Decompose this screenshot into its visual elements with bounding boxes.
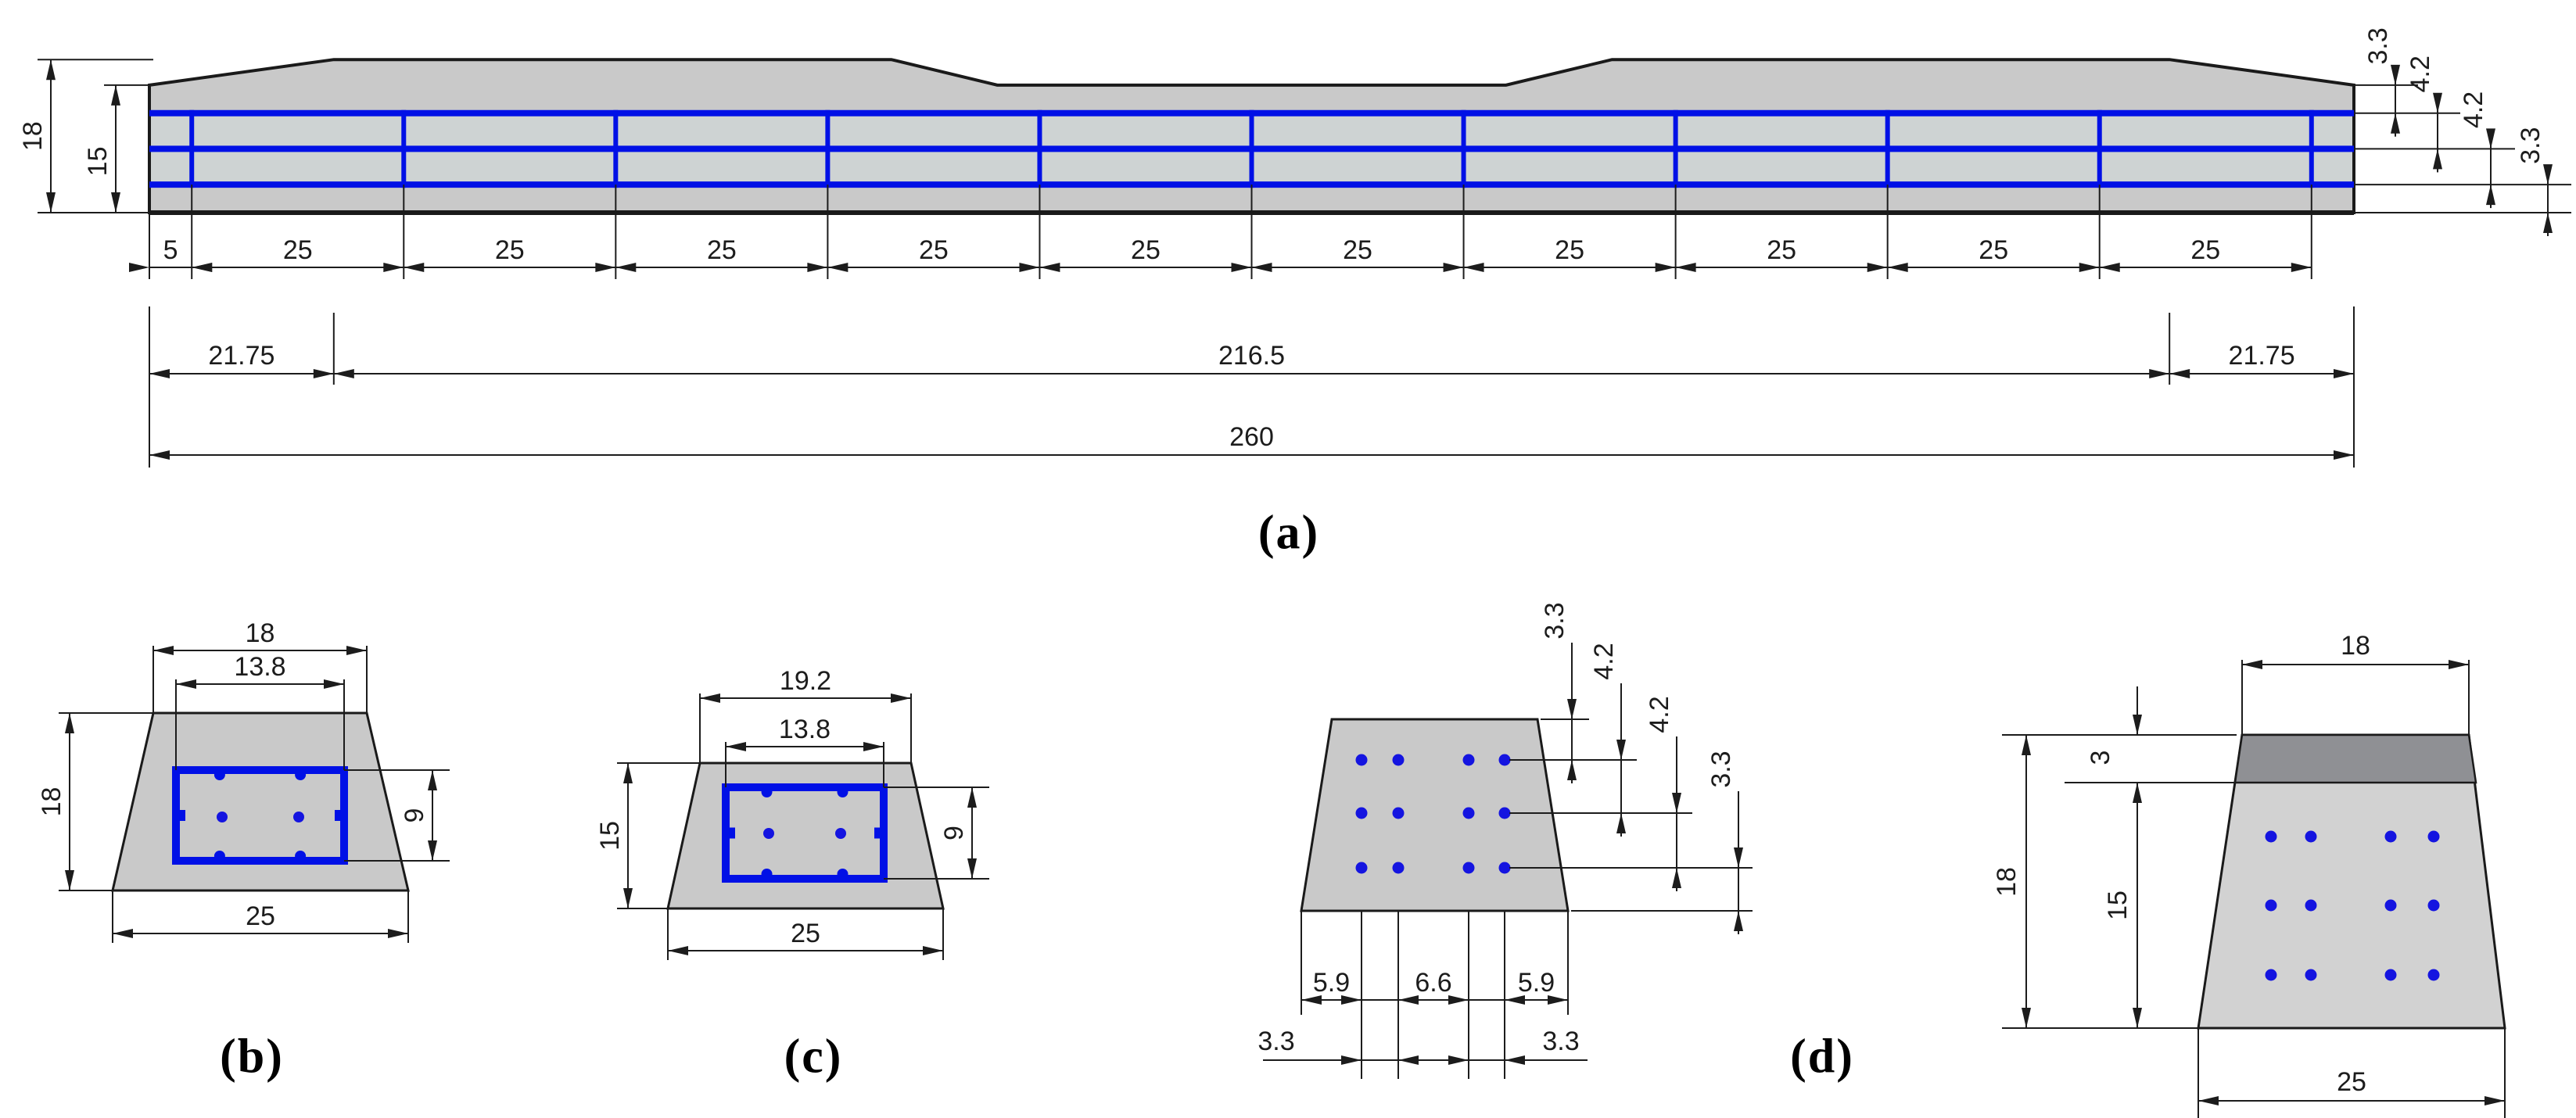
dim-label: 5.9 [1313, 968, 1350, 998]
arrowhead [967, 858, 977, 879]
arrowhead [1672, 793, 1681, 813]
arrowhead [65, 713, 74, 733]
arrowhead [1398, 1055, 1419, 1065]
arrowhead [46, 192, 56, 213]
rebar-dot [293, 812, 304, 822]
arrowhead [615, 263, 636, 272]
arrowhead [2334, 369, 2354, 378]
arrowhead [1867, 263, 1888, 272]
strand-dot [2305, 831, 2317, 843]
stirrup-notch [295, 769, 306, 780]
dim-label: 25 [495, 235, 525, 265]
arrowhead [2334, 450, 2354, 460]
arrowhead [324, 679, 344, 689]
arrowhead [2391, 65, 2400, 85]
section-outline [1301, 719, 1568, 911]
arrowhead [1672, 868, 1681, 888]
dim-label: 4.2 [2406, 56, 2435, 92]
dim-label: 18 [2341, 631, 2370, 661]
dim-label: 260 [1229, 422, 1274, 452]
dim-label: 25 [1555, 235, 1584, 265]
arrowhead [153, 646, 174, 655]
strand-dot [2428, 831, 2440, 843]
arrowhead [1039, 263, 1060, 272]
strand-dot [1499, 808, 1511, 819]
dim-label: 15 [595, 821, 625, 851]
strand-dot [2385, 969, 2397, 981]
dim-label: 3.3 [1540, 602, 1570, 639]
arrowhead [2242, 660, 2262, 669]
dim-label: 25 [1979, 235, 2008, 265]
strand-dot [1393, 862, 1405, 874]
composite-section-drawing: 181815325 [1932, 594, 2576, 1118]
strand-dot [2266, 969, 2277, 981]
dim-label: 25 [1767, 235, 1796, 265]
arrowhead [1734, 911, 1743, 931]
arrowhead [807, 263, 827, 272]
arrowhead [2022, 735, 2031, 755]
arrowhead [1232, 263, 1252, 272]
arrowhead [176, 679, 196, 689]
strand-dot [1463, 808, 1475, 819]
strand-dot [2266, 831, 2277, 843]
dim-label: 25 [246, 901, 275, 931]
dim-label: 5 [163, 235, 178, 265]
dim-label: 25 [707, 235, 737, 265]
arrowhead [346, 646, 367, 655]
dim-label: 18 [37, 787, 66, 817]
strand-dot [2385, 831, 2397, 843]
stirrup-notch [214, 769, 225, 780]
dim-label: 3.3 [1706, 751, 1736, 787]
arrowhead [1341, 1055, 1362, 1065]
stirrup-tab [874, 828, 885, 839]
arrowhead [2022, 1008, 2031, 1028]
arrowhead [1444, 263, 1464, 272]
strand-dot [1356, 862, 1368, 874]
dim-label: 4.2 [2459, 91, 2488, 128]
arrowhead [388, 929, 408, 938]
arrowhead [726, 742, 746, 751]
dim-label: 25 [1131, 235, 1161, 265]
dim-label: 21.75 [2229, 341, 2295, 371]
arrowhead [1019, 263, 1039, 272]
panel-b-label: (b) [220, 1030, 284, 1085]
arrowhead [428, 840, 437, 861]
arrowhead [2133, 783, 2142, 803]
dim-label: 18 [18, 121, 48, 151]
dim-label: 18 [246, 618, 275, 648]
dim-label: 3.3 [2363, 27, 2393, 64]
strand-dot [2385, 900, 2397, 912]
arrowhead [2149, 369, 2169, 378]
rebar-dot [835, 828, 846, 839]
arrowhead [967, 787, 977, 808]
arrowhead [1734, 847, 1743, 868]
arrowhead [1567, 760, 1577, 780]
arrowhead [1676, 263, 1696, 272]
strand-dot [2305, 900, 2317, 912]
dim-label: 3.3 [1542, 1027, 1579, 1056]
arrowhead [2079, 263, 2100, 272]
stirrup-tab [174, 810, 185, 821]
strand-dot [1499, 862, 1511, 874]
stirrup-notch [295, 851, 306, 862]
arrowhead [2100, 263, 2120, 272]
arrowhead [2486, 128, 2495, 149]
arrowhead [623, 888, 633, 908]
rebar-dot [217, 812, 228, 822]
arrowhead [668, 946, 688, 955]
arrowhead [595, 263, 615, 272]
arrowhead [2486, 185, 2495, 205]
arrowhead [2133, 1008, 2142, 1028]
stirrup-tab [724, 828, 735, 839]
arrowhead [2391, 113, 2400, 134]
figure-beam-drawing: 18153.34.24.23.352525252525252525252521.… [0, 0, 2576, 1118]
arrowhead [1252, 263, 1272, 272]
arrowhead [65, 870, 74, 890]
stirrup-notch [837, 869, 848, 880]
arrowhead [2543, 164, 2553, 185]
beam-elevation-drawing: 18153.34.24.23.352525252525252525252521.… [0, 0, 2576, 579]
strand-dot [2266, 900, 2277, 912]
dim-label: 13.8 [779, 715, 831, 744]
arrowhead [383, 263, 404, 272]
arrowhead [2169, 369, 2190, 378]
arrowhead [827, 263, 848, 272]
arrowhead [334, 369, 354, 378]
strand-dot [2428, 969, 2440, 981]
arrowhead [891, 693, 911, 703]
stirrup-notch [214, 851, 225, 862]
dim-label: 216.5 [1218, 341, 1285, 371]
dim-label: 5.9 [1518, 968, 1555, 998]
stirrup-notch [762, 869, 773, 880]
arrowhead [149, 369, 170, 378]
dim-label: 3.3 [2516, 127, 2546, 163]
arrowhead [2449, 660, 2469, 669]
arrowhead [1616, 813, 1626, 833]
arrowhead [111, 192, 120, 213]
strand-dot [1393, 808, 1405, 819]
arrowhead [2485, 1096, 2505, 1105]
dim-label: 15 [2103, 890, 2133, 920]
dim-label: 6.6 [1415, 968, 1451, 998]
arrowhead [2433, 93, 2442, 113]
arrowhead [863, 742, 884, 751]
arrowhead [404, 263, 424, 272]
arrowhead [2133, 715, 2142, 735]
strand-dot [1393, 754, 1405, 766]
panel-a-label: (a) [1258, 506, 1319, 561]
dim-label: 9 [400, 808, 429, 823]
dim-label: 9 [939, 826, 969, 840]
arrowhead [46, 59, 56, 80]
strand-dot [1356, 808, 1368, 819]
dim-label: 18 [1992, 867, 2022, 897]
stirrup-tab [335, 810, 346, 821]
arrowhead [314, 369, 334, 378]
arrowhead [129, 263, 149, 272]
rebar-dot [763, 828, 774, 839]
arrowhead [1616, 740, 1626, 760]
arrowhead [1505, 1055, 1525, 1065]
panel-d-label: (d) [1790, 1030, 1854, 1085]
strand-dot [2428, 900, 2440, 912]
panel-c-label: (c) [784, 1030, 843, 1085]
arrowhead [1464, 263, 1484, 272]
arrowhead [623, 763, 633, 783]
arrowhead [2433, 149, 2442, 169]
arrowhead [2543, 213, 2553, 233]
strand-dot [1499, 754, 1511, 766]
dim-label: 3 [2086, 751, 2115, 765]
arrowhead [113, 929, 133, 938]
topping-band [2235, 735, 2476, 783]
arrowhead [1888, 263, 1908, 272]
stirrup-notch [837, 787, 848, 797]
arrowhead [2291, 263, 2312, 272]
dim-label: 25 [2190, 235, 2220, 265]
arrowhead [1656, 263, 1676, 272]
dim-label: 25 [1343, 235, 1372, 265]
arrowhead [700, 693, 720, 703]
strand-dot [2305, 969, 2317, 981]
dim-label: 13.8 [234, 652, 285, 682]
dim-label: 25 [791, 919, 820, 948]
arrowhead [428, 770, 437, 790]
arrowhead [1448, 1055, 1469, 1065]
dim-label: 25 [2337, 1067, 2366, 1097]
strand-dot [1463, 754, 1475, 766]
arrowhead [149, 450, 170, 460]
stirrup-notch [762, 787, 773, 797]
dim-label: 19.2 [780, 666, 831, 696]
arrowhead [923, 946, 943, 955]
dim-label: 21.75 [208, 341, 274, 371]
strand-dot [1463, 862, 1475, 874]
arrowhead [111, 85, 120, 106]
arrowhead [2198, 1096, 2219, 1105]
dim-label: 25 [283, 235, 313, 265]
dim-label: 25 [919, 235, 949, 265]
dim-label: 4.2 [1645, 696, 1674, 733]
dim-label: 4.2 [1589, 643, 1619, 679]
dim-label: 3.3 [1258, 1027, 1294, 1056]
dim-label: 15 [83, 147, 113, 177]
arrowhead [192, 263, 212, 272]
strand-dot [1356, 754, 1368, 766]
arrowhead [1567, 699, 1577, 719]
